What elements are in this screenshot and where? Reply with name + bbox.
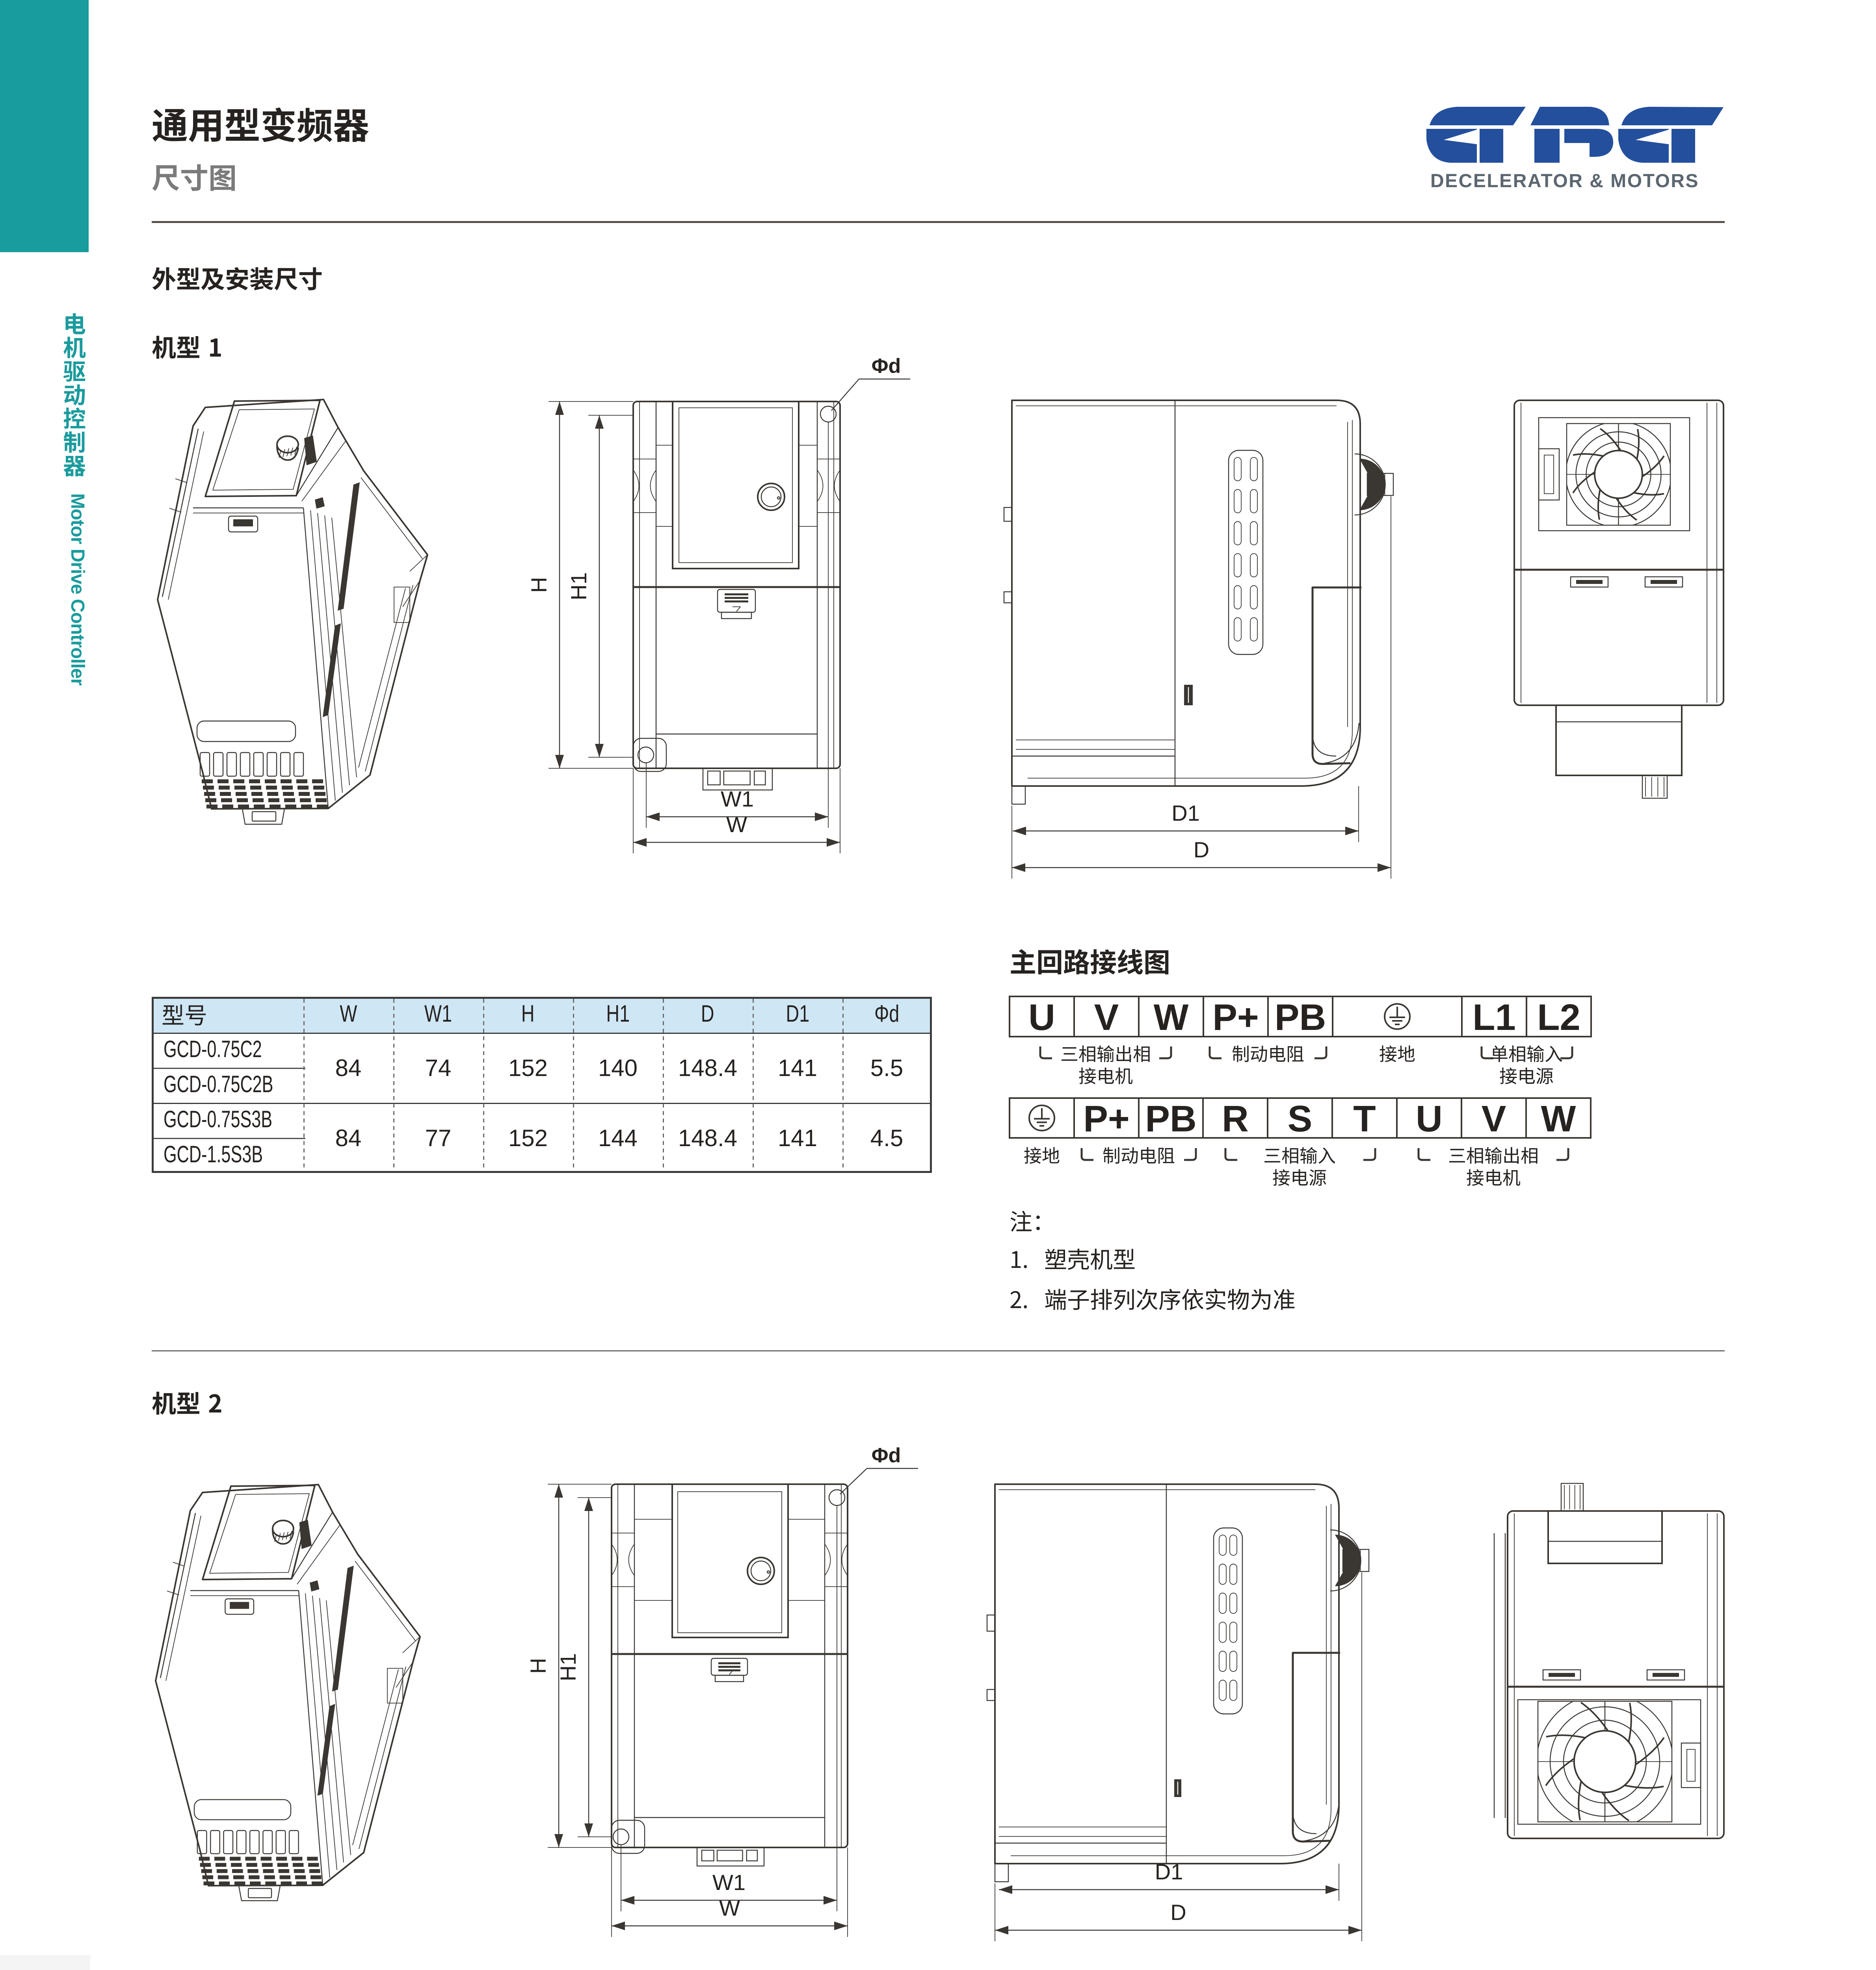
svg-text:D1: D1 bbox=[1171, 801, 1200, 825]
svg-text:U: U bbox=[1028, 996, 1055, 1038]
svg-text:R: R bbox=[1222, 1098, 1249, 1139]
svg-text:Φd: Φd bbox=[872, 1444, 901, 1467]
svg-text:V: V bbox=[1482, 1098, 1506, 1139]
svg-text:D: D bbox=[1170, 1900, 1186, 1925]
svg-text:PB: PB bbox=[1145, 1098, 1197, 1139]
svg-text:L2: L2 bbox=[1537, 996, 1580, 1038]
svg-text:U: U bbox=[1416, 1098, 1443, 1139]
svg-text:D1: D1 bbox=[1155, 1859, 1183, 1884]
svg-text:P+: P+ bbox=[1212, 996, 1259, 1038]
svg-text:W: W bbox=[726, 812, 747, 837]
svg-text:H: H bbox=[526, 577, 551, 593]
svg-text:H1: H1 bbox=[566, 572, 591, 600]
svg-text:H1: H1 bbox=[556, 1653, 580, 1682]
svg-text:PB: PB bbox=[1275, 996, 1326, 1038]
svg-text:L1: L1 bbox=[1473, 996, 1516, 1038]
svg-text:S: S bbox=[1288, 1098, 1313, 1139]
svg-text:P+: P+ bbox=[1083, 1098, 1130, 1139]
svg-text:Φd: Φd bbox=[872, 355, 901, 377]
svg-text:T: T bbox=[1353, 1098, 1376, 1139]
svg-text:W1: W1 bbox=[721, 786, 754, 811]
svg-text:W: W bbox=[1541, 1098, 1576, 1139]
svg-text:H: H bbox=[526, 1658, 550, 1674]
svg-text:W: W bbox=[1154, 996, 1189, 1038]
svg-text:W: W bbox=[719, 1896, 740, 1920]
svg-text:V: V bbox=[1094, 996, 1119, 1038]
svg-text:D: D bbox=[1194, 837, 1209, 862]
svg-text:W1: W1 bbox=[712, 1870, 746, 1895]
